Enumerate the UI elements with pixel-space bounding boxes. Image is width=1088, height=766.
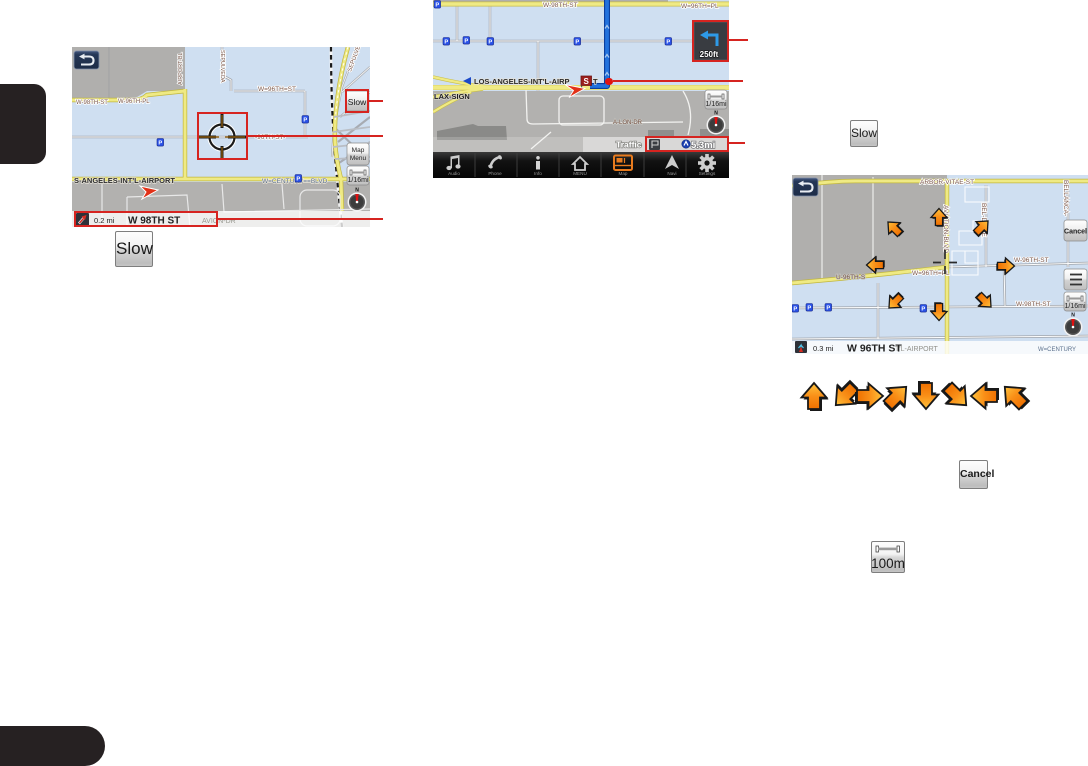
svg-text:S-ANGELES-INT'L-AIRPORT: S-ANGELES-INT'L-AIRPORT [74,176,175,185]
svg-text:MENU: MENU [573,171,587,176]
svg-text:W-96TH-PL: W-96TH-PL [118,99,150,105]
svg-text:0.3 mi: 0.3 mi [813,344,834,353]
svg-text:W=96TH=PL: W=96TH=PL [681,3,719,10]
svg-text:Audio: Audio [448,171,460,176]
svg-text:Menu: Menu [350,155,367,162]
svg-text:Traffic: Traffic [616,140,642,150]
svg-text:SEPULVEDA: SEPULVEDA [219,50,225,83]
svg-text:Map: Map [352,147,365,154]
svg-text:W 96TH ST: W 96TH ST [847,343,902,355]
svg-text:W-98TH-ST: W-98TH-ST [76,100,108,106]
svg-text:LOS-ANGELES-INT'L-AIRP: LOS-ANGELES-INT'L-AIRP [474,77,570,86]
svg-text:W=CENTURY: W=CENTURY [1038,347,1076,353]
svg-text:ARBOR-VITAE-ST: ARBOR-VITAE-ST [920,179,974,186]
svg-text:U-96TH-S: U-96TH-S [836,274,866,281]
svg-text:A-LON-DR: A-LON-DR [613,120,643,126]
svg-text:Cancel: Cancel [1064,229,1087,236]
svg-text:W-96TH-ST: W-96TH-ST [1014,257,1049,264]
svg-text:Map: Map [619,171,628,176]
svg-text:W-98TH-ST: W-98TH-ST [1016,301,1051,308]
svg-text:W=96TH=ST: W=96TH=ST [258,86,296,93]
svg-text:Navi: Navi [667,171,676,176]
svg-text:W-98TH-ST: W-98TH-ST [543,2,578,9]
svg-text:S: S [584,77,590,86]
svg-text:T: T [593,77,598,86]
svg-text:Info: Info [534,171,542,176]
svg-text:Phone: Phone [488,171,502,176]
svg-text:Settings: Settings [699,171,716,176]
svg-text:BELLANCA-: BELLANCA- [1062,180,1069,216]
svg-text:100m: 100m [872,556,904,571]
svg-text:AIRPORT-BL: AIRPORT-BL [178,52,184,85]
svg-text:LAX-SIGN: LAX-SIGN [434,92,470,101]
